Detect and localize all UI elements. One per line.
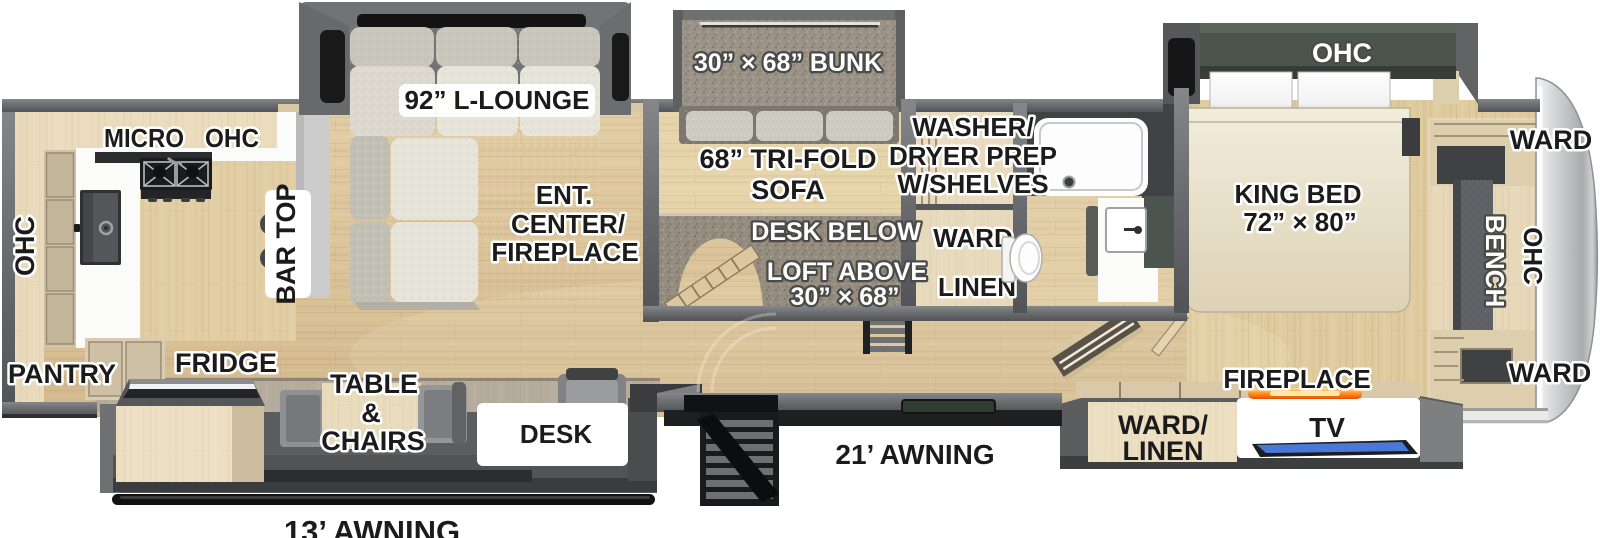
svg-text:BENCH: BENCH [1480, 215, 1510, 307]
svg-text:FIREPLACE: FIREPLACE [1223, 364, 1370, 394]
svg-text:OHC: OHC [1312, 38, 1372, 68]
svg-text:CENTER/: CENTER/ [511, 209, 625, 239]
svg-text:MICRO: MICRO [104, 123, 184, 153]
svg-text:30” × 68”: 30” × 68” [790, 283, 899, 311]
svg-text:DRYER PREP: DRYER PREP [889, 141, 1057, 171]
svg-text:OHC: OHC [1518, 227, 1548, 285]
svg-text:SOFA: SOFA [751, 175, 825, 205]
svg-text:72” × 80”: 72” × 80” [1243, 207, 1356, 237]
svg-text:30” × 68” BUNK: 30” × 68” BUNK [694, 49, 882, 77]
svg-text:PANTRY: PANTRY [8, 359, 116, 389]
svg-text:21’ AWNING: 21’ AWNING [835, 439, 994, 470]
svg-text:FRIDGE: FRIDGE [175, 348, 277, 378]
svg-text:BAR TOP: BAR TOP [271, 183, 301, 304]
svg-text:KING BED: KING BED [1234, 179, 1361, 209]
svg-text:TV: TV [1309, 412, 1345, 443]
svg-text:LOFT ABOVE: LOFT ABOVE [767, 258, 927, 286]
svg-text:68” TRI-FOLD: 68” TRI-FOLD [699, 144, 876, 174]
svg-text:DESK: DESK [520, 419, 592, 449]
svg-text:LINEN: LINEN [1123, 436, 1204, 466]
svg-text:DESK BELOW: DESK BELOW [751, 218, 921, 246]
svg-text:TABLE: TABLE [330, 369, 418, 399]
svg-text:W/SHELVES: W/SHELVES [897, 169, 1048, 199]
svg-text:13’ AWNING: 13’ AWNING [284, 514, 460, 538]
svg-text:ENT.: ENT. [536, 180, 592, 210]
svg-text:OHC: OHC [10, 216, 40, 276]
svg-text:WARD: WARD [933, 223, 1012, 253]
svg-text:OHC: OHC [205, 123, 259, 153]
svg-text:WASHER/: WASHER/ [912, 112, 1033, 142]
svg-text:92” L-LOUNGE: 92” L-LOUNGE [405, 85, 590, 115]
svg-text:&: & [361, 398, 381, 428]
svg-text:CHAIRS: CHAIRS [321, 426, 425, 456]
svg-text:WARD: WARD [1509, 358, 1592, 388]
svg-text:WARD: WARD [1510, 125, 1593, 155]
svg-text:FIREPLACE: FIREPLACE [491, 237, 638, 267]
